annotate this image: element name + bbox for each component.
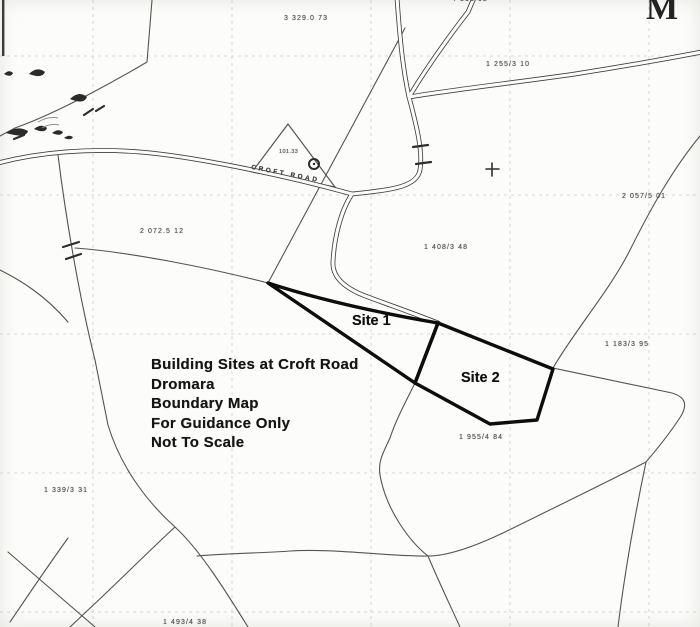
cross-symbol <box>486 163 499 176</box>
edge-artifact <box>2 0 4 56</box>
map-symbols <box>2 0 499 259</box>
site-1-boundary <box>268 283 438 383</box>
site-boundaries <box>268 283 553 424</box>
site-2-boundary <box>415 323 553 424</box>
roads <box>0 0 700 323</box>
scanned-map-page: 3 329.0 734 331 921 255/3 102 057/5 012 … <box>0 0 700 627</box>
gate-tick-marks <box>14 106 431 259</box>
grid-lines <box>0 0 700 627</box>
field-boundary-lines <box>0 0 700 627</box>
rock-outcrop-blobs <box>4 69 87 139</box>
map-drawing <box>0 0 700 627</box>
